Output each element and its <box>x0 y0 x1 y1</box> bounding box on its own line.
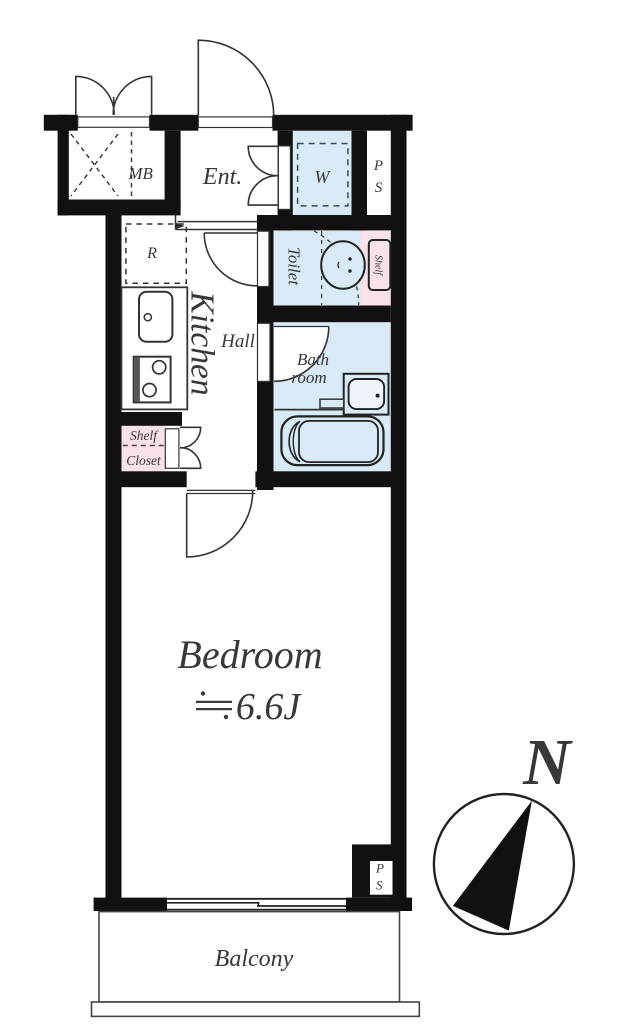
svg-text:Ent.: Ent. <box>202 164 242 190</box>
svg-text:R: R <box>146 245 157 262</box>
svg-text:Toilet: Toilet <box>285 247 304 286</box>
svg-text:Closet: Closet <box>126 453 162 468</box>
svg-text:W: W <box>315 167 332 187</box>
svg-text:N: N <box>522 726 573 799</box>
svg-text:Balcony: Balcony <box>215 946 294 972</box>
svg-text:S: S <box>375 180 383 196</box>
svg-text:S: S <box>376 878 383 893</box>
svg-text:Shelf: Shelf <box>130 428 159 443</box>
svg-text:Bath: Bath <box>297 350 329 369</box>
svg-text:MB: MB <box>127 164 153 183</box>
svg-text:Kitchen: Kitchen <box>184 290 221 395</box>
svg-text:6.6J: 6.6J <box>236 686 303 728</box>
svg-text:Bedroom: Bedroom <box>177 632 322 677</box>
svg-text:P: P <box>373 158 383 174</box>
svg-text:Hall: Hall <box>220 331 255 352</box>
svg-text:P: P <box>375 861 384 876</box>
svg-text:room: room <box>291 368 326 387</box>
svg-text:Shelf: Shelf <box>373 255 384 276</box>
